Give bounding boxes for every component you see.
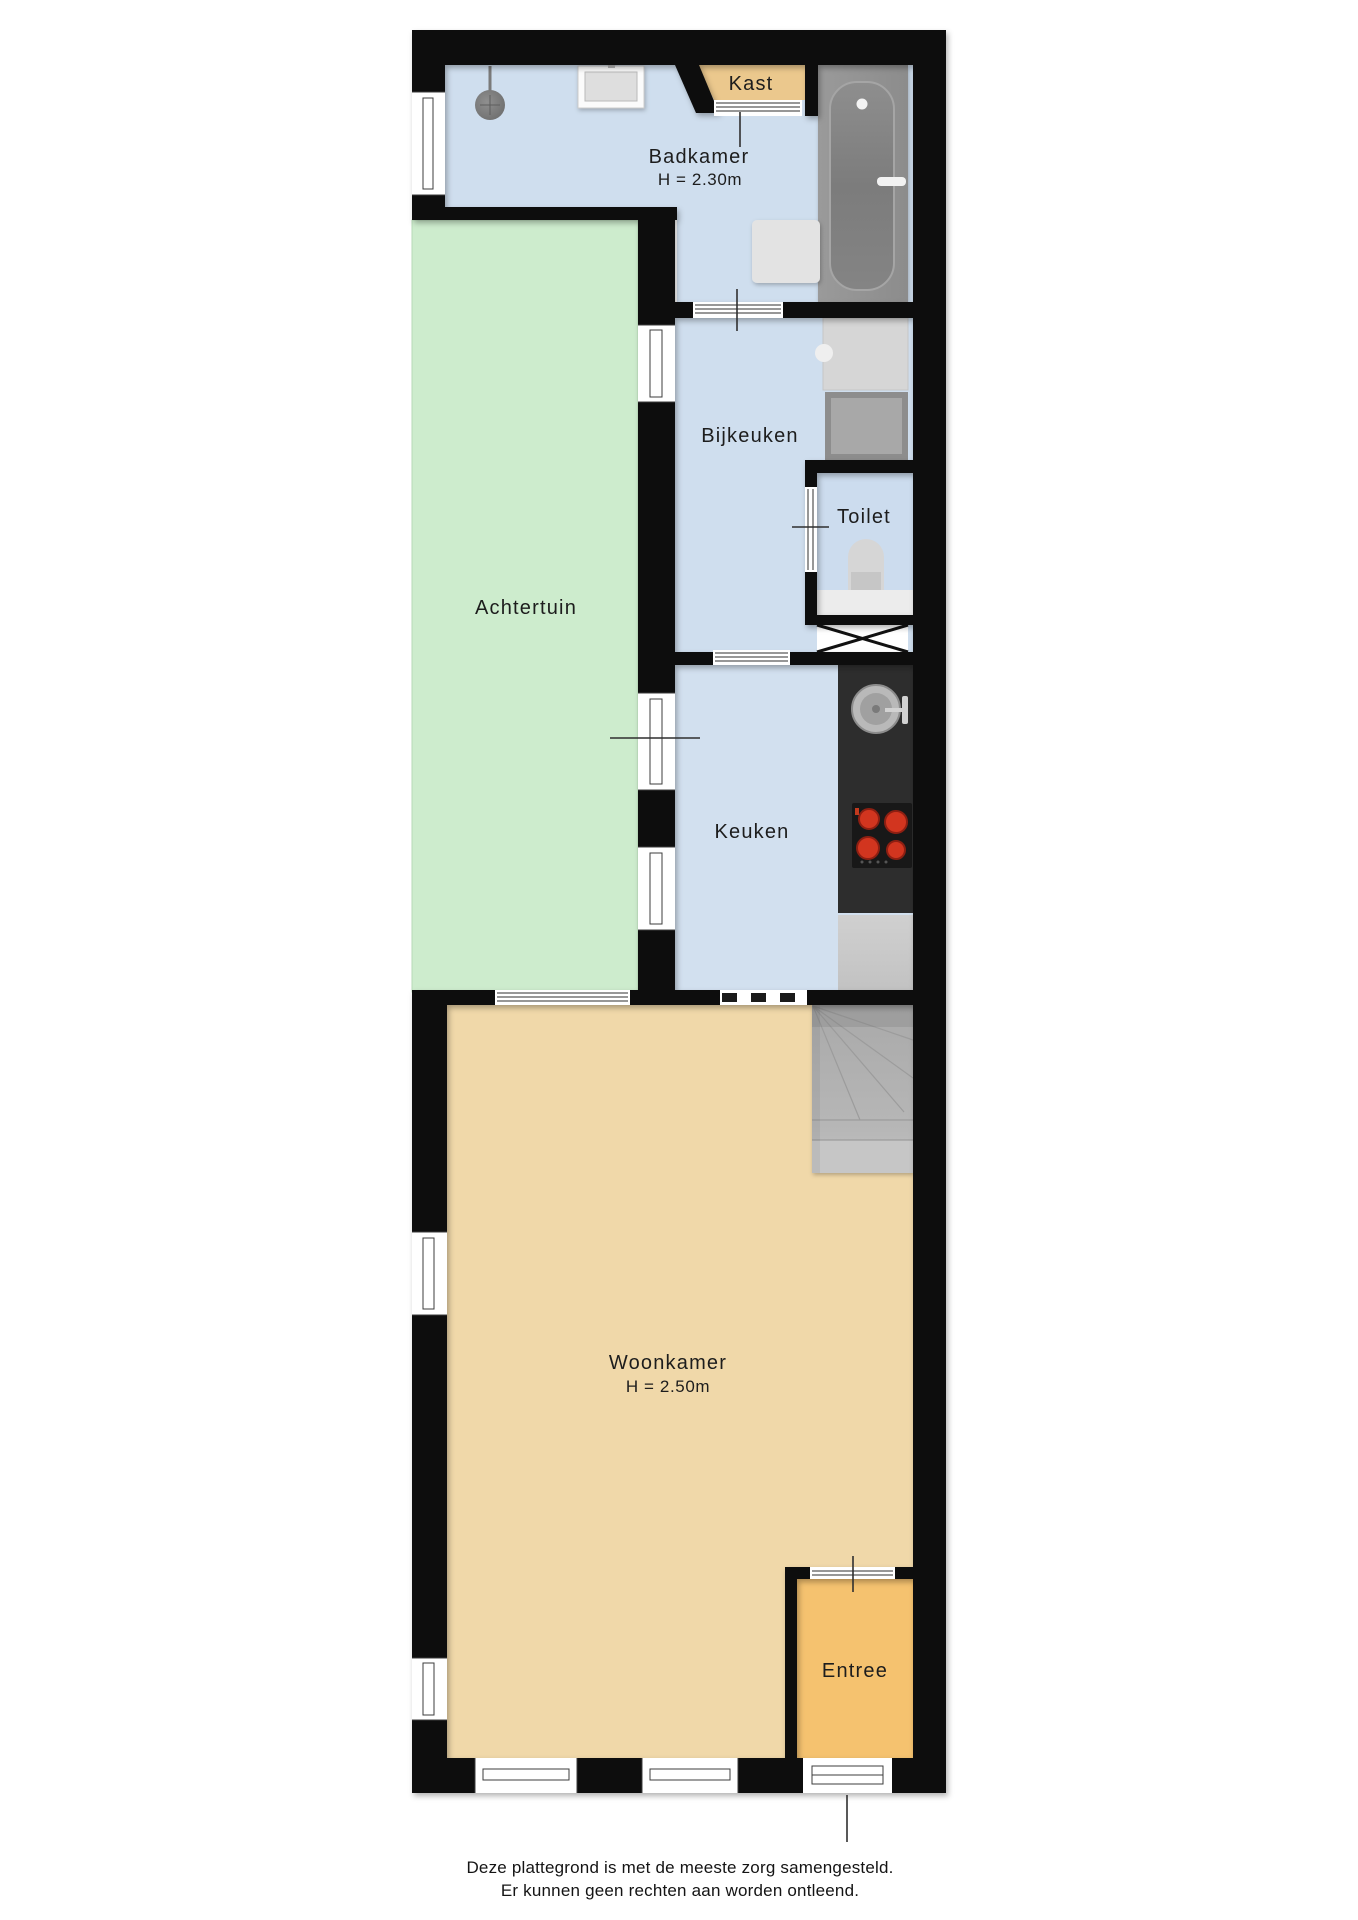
facade-window-left [475,1758,577,1793]
disclaimer: Deze plattegrond is met de meeste zorg s… [466,1858,893,1900]
woonkamer-window-lower [412,1658,447,1720]
wall-toilet-top [805,460,913,473]
bijkeuken-window [638,325,675,402]
wall-kast-right [805,65,818,116]
kitchen-counter [838,665,913,913]
wall-right [913,30,946,1793]
facade-window-right [642,1758,738,1793]
woonkamer-height-label: H = 2.50m [626,1377,710,1396]
wall-garden-top [412,207,677,220]
keuken-window-upper [638,693,675,790]
wall-woonkamer-top [412,990,913,1005]
woonkamer-label: Woonkamer [609,1352,727,1374]
tub-drain [857,99,868,110]
keuken-woonkamer-opening [720,990,807,1005]
toilet-label: Toilet [837,506,891,528]
wall-bijkeuken-keuken [675,652,913,665]
staircase [812,1005,913,1173]
bath-mat [752,220,820,283]
bathroom-sink [578,62,644,108]
wall-toilet-bottom [805,615,913,625]
kitchen-cabinet [838,915,913,990]
entree-label: Entree [822,1660,888,1682]
laundry-appliance [815,318,908,390]
wall-top [412,30,946,65]
badkamer-height-label: H = 2.30m [658,170,742,189]
tub-handle [877,177,906,186]
washing-machine [825,392,908,460]
keuken-label: Keuken [714,821,789,843]
front-door [803,1758,892,1842]
bijkeuken-label: Bijkeuken [701,425,799,447]
floor-plan-drawing: Kast Badkamer H = 2.30m Bijkeuken Toilet… [0,0,1358,1920]
floor-plan-page: Kast Badkamer H = 2.30m Bijkeuken Toilet… [0,0,1358,1920]
badkamer-window [412,92,445,195]
wall-entree-left [785,1567,797,1758]
crawl-hatch [817,625,908,652]
garden-sliding-door [495,990,630,1005]
woonkamer-window-upper [412,1232,447,1315]
disclaimer-line1: Deze plattegrond is met de meeste zorg s… [466,1858,893,1877]
disclaimer-line2: Er kunnen geen rechten aan worden ontlee… [501,1881,859,1900]
cooktop [852,803,912,868]
achtertuin-label: Achtertuin [475,597,577,619]
bathtub [818,65,908,302]
bijkeuken-keuken-door [713,650,790,665]
keuken-window-lower [638,847,675,930]
badkamer-label: Badkamer [649,146,750,168]
kast-label: Kast [729,73,774,95]
